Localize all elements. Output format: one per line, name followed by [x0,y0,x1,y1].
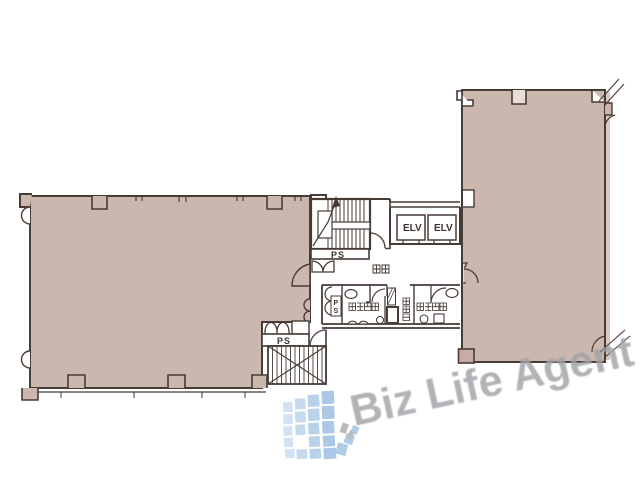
svg-text:PS: PS [331,250,345,260]
svg-text:P: P [334,300,339,307]
svg-text:ELV: ELV [434,223,453,234]
svg-text:ELV: ELV [403,223,422,234]
svg-text:PS: PS [277,336,291,346]
svg-text:S: S [334,308,339,315]
